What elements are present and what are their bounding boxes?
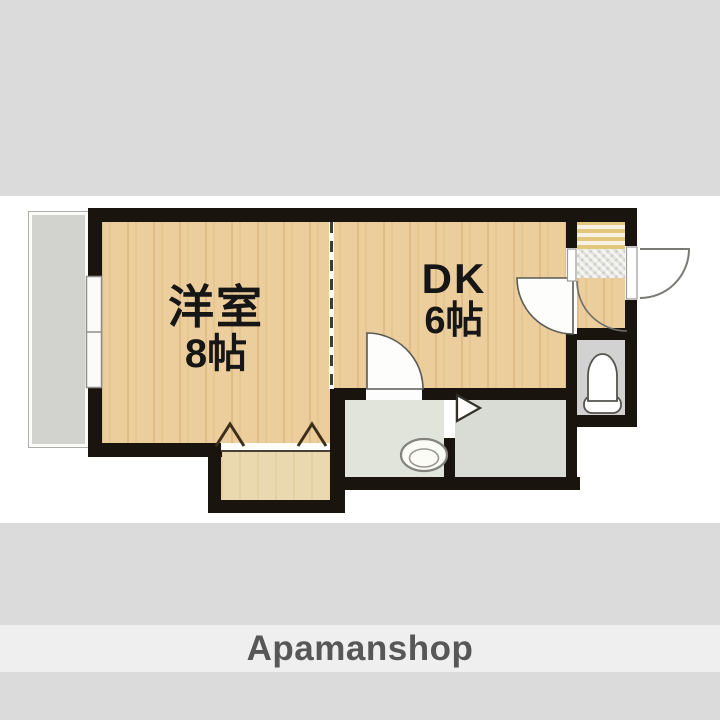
dk-door-opening xyxy=(566,248,577,334)
kitchen-sink-area xyxy=(577,249,625,278)
western-room-size: 8帖 xyxy=(185,334,247,374)
bottom-gray-band xyxy=(0,672,720,720)
western-room-name: 洋室 xyxy=(168,284,264,330)
bathroom-floor xyxy=(455,400,566,477)
closet-interior xyxy=(221,450,330,501)
kitchen-counter xyxy=(577,221,625,249)
wall-closet-bottom xyxy=(208,500,343,513)
wall-right-exterior xyxy=(625,208,637,427)
balcony xyxy=(29,212,88,447)
wall-wet-area-bottom xyxy=(330,477,580,490)
dk-room-name: DK xyxy=(422,258,487,300)
washroom-floor xyxy=(345,400,444,477)
western-room-label: 洋室 8帖 xyxy=(104,284,328,374)
washroom-door-opening xyxy=(366,388,422,400)
wall-toilet-bottom xyxy=(566,415,637,427)
brand-band: Apamanshop xyxy=(0,625,720,672)
wall-left xyxy=(88,208,102,457)
dk-room-label: DK 6帖 xyxy=(362,258,546,340)
lower-gray-band xyxy=(0,523,720,625)
wall-bath-divider xyxy=(444,438,455,477)
room-divider-dashed-line xyxy=(329,222,334,389)
floor-plan-image: Apamanshop xyxy=(0,0,720,720)
closet-opening xyxy=(221,443,330,452)
wall-bottom-left xyxy=(88,443,222,457)
toilet-room-floor xyxy=(577,340,625,415)
entrance-opening xyxy=(625,246,637,300)
top-gray-band xyxy=(0,0,720,196)
wall-top xyxy=(88,208,637,222)
brand-logo-text: Apamanshop xyxy=(247,629,474,669)
wall-washroom-left xyxy=(330,388,345,513)
dk-room-size: 6帖 xyxy=(424,302,483,340)
